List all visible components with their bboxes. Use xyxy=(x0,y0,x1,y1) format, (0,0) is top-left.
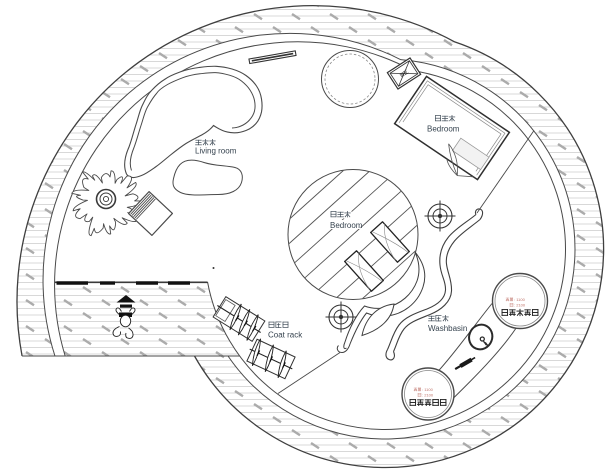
svg-text:Coat rack: Coat rack xyxy=(268,331,303,340)
svg-text:Bedroom: Bedroom xyxy=(330,221,363,230)
svg-text:: 2100: : 2100 xyxy=(422,393,434,398)
svg-text:: 1100: : 1100 xyxy=(422,387,434,392)
svg-text:Bedroom: Bedroom xyxy=(427,125,460,134)
svg-text:: 1100: : 1100 xyxy=(514,297,526,302)
svg-text:: 2100: : 2100 xyxy=(514,303,526,308)
svg-text:Washbasin: Washbasin xyxy=(428,324,467,333)
svg-text:Living room: Living room xyxy=(195,147,237,156)
